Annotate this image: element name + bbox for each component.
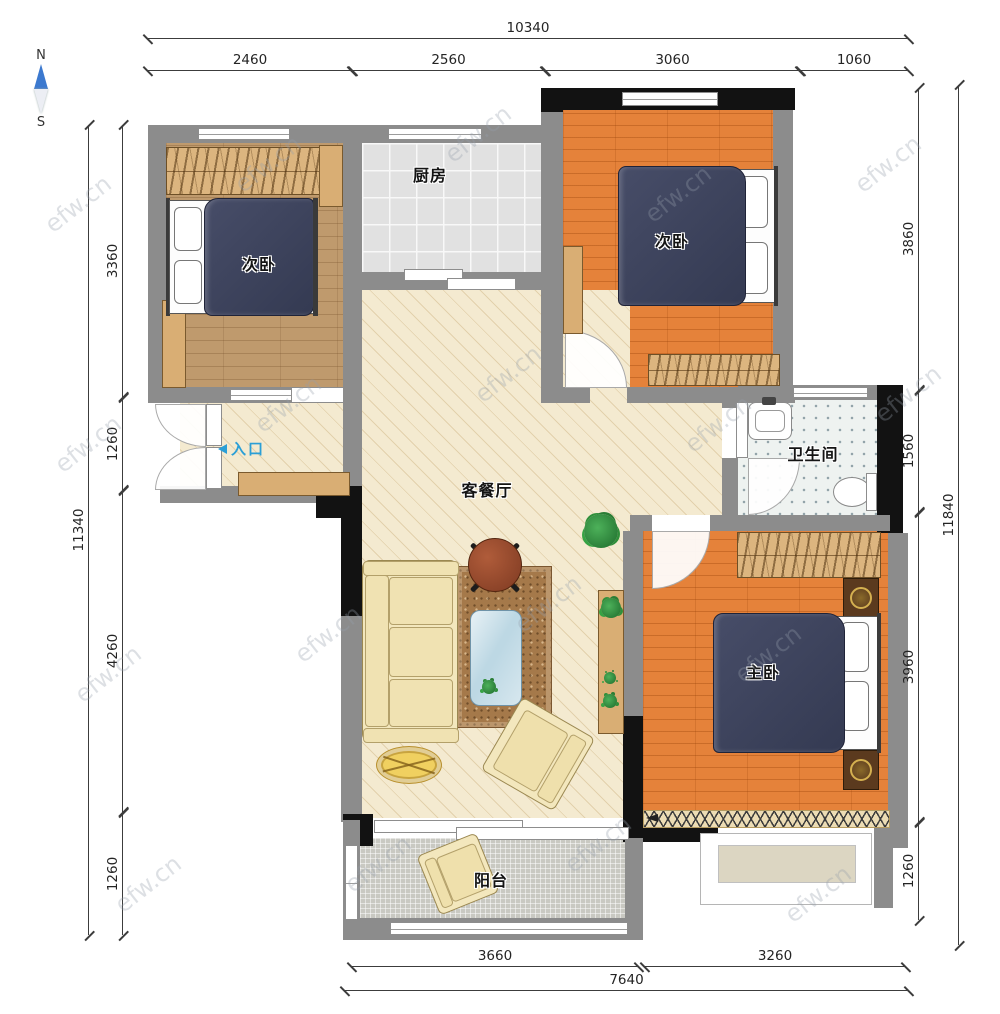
dim-right-seg: 1560 bbox=[918, 390, 919, 512]
dim-right-seg: 3960 bbox=[918, 512, 919, 822]
room-label-bedroom-left: 次卧 bbox=[242, 251, 276, 275]
dim-left-seg: 1260 bbox=[122, 397, 123, 490]
wall bbox=[877, 385, 903, 533]
compass: N S bbox=[26, 48, 56, 130]
dim-right-total: 11840 bbox=[958, 85, 959, 945]
sofa-cushion bbox=[389, 679, 453, 727]
pillow bbox=[174, 207, 202, 251]
sofa-backrest bbox=[365, 575, 389, 727]
sink-basin bbox=[755, 410, 785, 432]
bay-window-inner bbox=[718, 845, 856, 883]
compass-south-label: S bbox=[26, 115, 56, 130]
dining-table bbox=[468, 538, 522, 592]
toilet-tank bbox=[866, 473, 877, 511]
sofa bbox=[362, 560, 458, 742]
wall bbox=[710, 515, 890, 531]
watermark: efw.cn bbox=[849, 129, 926, 198]
wall bbox=[563, 387, 590, 403]
dim-left-total: 11340 bbox=[88, 125, 89, 935]
window bbox=[622, 92, 718, 106]
dim-top-seg: 2560 bbox=[352, 70, 545, 71]
wardrobe bbox=[166, 147, 332, 195]
dim-bottom-seg: 3260 bbox=[645, 966, 905, 967]
plant-icon bbox=[603, 694, 617, 708]
oval-rug bbox=[376, 746, 442, 784]
window bbox=[345, 845, 358, 920]
sofa-armrest bbox=[363, 561, 459, 576]
window-direction-arrow-icon bbox=[646, 814, 658, 822]
bed-duvet bbox=[713, 613, 845, 753]
dim-right-seg: 3860 bbox=[918, 88, 919, 390]
entrance-arrow-icon bbox=[218, 444, 227, 454]
wall bbox=[343, 125, 362, 505]
wall bbox=[341, 486, 362, 616]
kitchen-sliding-door bbox=[447, 278, 516, 290]
room-label-balcony: 阳台 bbox=[474, 867, 508, 891]
bathroom-door-leaf bbox=[736, 402, 748, 458]
plant-icon bbox=[601, 598, 621, 618]
window bbox=[230, 389, 292, 401]
balcony-sliding-door bbox=[456, 827, 629, 840]
shelf bbox=[563, 246, 583, 334]
sofa-cushion bbox=[389, 627, 453, 677]
room-label-bathroom: 卫生间 bbox=[787, 441, 838, 465]
nightstand bbox=[843, 578, 879, 618]
bathroom-sink bbox=[748, 402, 792, 440]
dim-bottom-total: 7640 bbox=[345, 990, 908, 991]
wall bbox=[722, 458, 738, 518]
dim-left-seg: 3360 bbox=[122, 125, 123, 397]
bed bbox=[713, 613, 881, 753]
dim-right-seg: 1260 bbox=[918, 822, 919, 920]
sofa-armrest bbox=[363, 728, 459, 743]
wall bbox=[541, 110, 563, 403]
plant-icon bbox=[584, 514, 618, 548]
window bbox=[390, 922, 628, 935]
plant-icon bbox=[482, 680, 496, 694]
entrance-label: 入口 bbox=[231, 438, 265, 459]
master-window-band bbox=[643, 810, 890, 828]
kitchen-floor bbox=[362, 143, 545, 275]
nightstand-ornament-icon bbox=[850, 759, 872, 781]
compass-needle-south-icon bbox=[34, 89, 48, 114]
nightstand bbox=[843, 750, 879, 790]
dim-top-total: 10340 bbox=[148, 38, 908, 39]
coffee-table bbox=[470, 610, 522, 706]
room-label-living-dining: 客餐厅 bbox=[461, 477, 512, 501]
room-label-bedroom-right: 次卧 bbox=[655, 228, 689, 252]
bedroom-left-door-opening bbox=[292, 388, 343, 402]
pillow bbox=[174, 260, 202, 304]
sofa-cushion bbox=[389, 577, 453, 625]
watermark: efw.cn bbox=[39, 169, 116, 238]
wall bbox=[874, 820, 893, 908]
dim-bottom-seg: 3660 bbox=[352, 966, 638, 967]
entry-door-swing-arc bbox=[155, 447, 206, 490]
bed-footboard bbox=[313, 198, 318, 316]
entrance-marker: 入口 bbox=[218, 438, 265, 459]
wall bbox=[623, 531, 643, 716]
bed-headboard bbox=[877, 613, 881, 753]
nightstand-ornament-icon bbox=[850, 587, 872, 609]
window bbox=[388, 128, 482, 140]
dim-top-seg: 2460 bbox=[148, 70, 352, 71]
room-label-kitchen: 厨房 bbox=[413, 162, 447, 186]
window bbox=[198, 128, 290, 140]
window bbox=[793, 387, 868, 398]
faucet-icon bbox=[762, 397, 776, 405]
room-label-master-bedroom: 主卧 bbox=[746, 659, 780, 683]
dim-left-seg: 4260 bbox=[122, 490, 123, 812]
plant-icon bbox=[604, 672, 616, 684]
dim-top-seg: 3060 bbox=[545, 70, 800, 71]
bed-headboard bbox=[774, 166, 778, 306]
wardrobe bbox=[737, 532, 881, 578]
pillow bbox=[841, 622, 869, 672]
pillow bbox=[841, 681, 869, 731]
compass-north-label: N bbox=[26, 48, 56, 63]
dim-top-seg: 1060 bbox=[800, 70, 908, 71]
bed bbox=[618, 166, 778, 306]
wardrobe bbox=[648, 354, 780, 386]
wall bbox=[341, 616, 362, 822]
wall bbox=[888, 533, 908, 848]
entry-door-swing-arc bbox=[155, 404, 206, 447]
floor-plan: N S bbox=[0, 0, 1000, 1014]
wall bbox=[630, 515, 652, 531]
compass-needle-north-icon bbox=[34, 64, 48, 89]
dim-left-seg: 1260 bbox=[122, 812, 123, 935]
shoe-cabinet bbox=[238, 472, 350, 496]
nightstand bbox=[319, 145, 343, 207]
